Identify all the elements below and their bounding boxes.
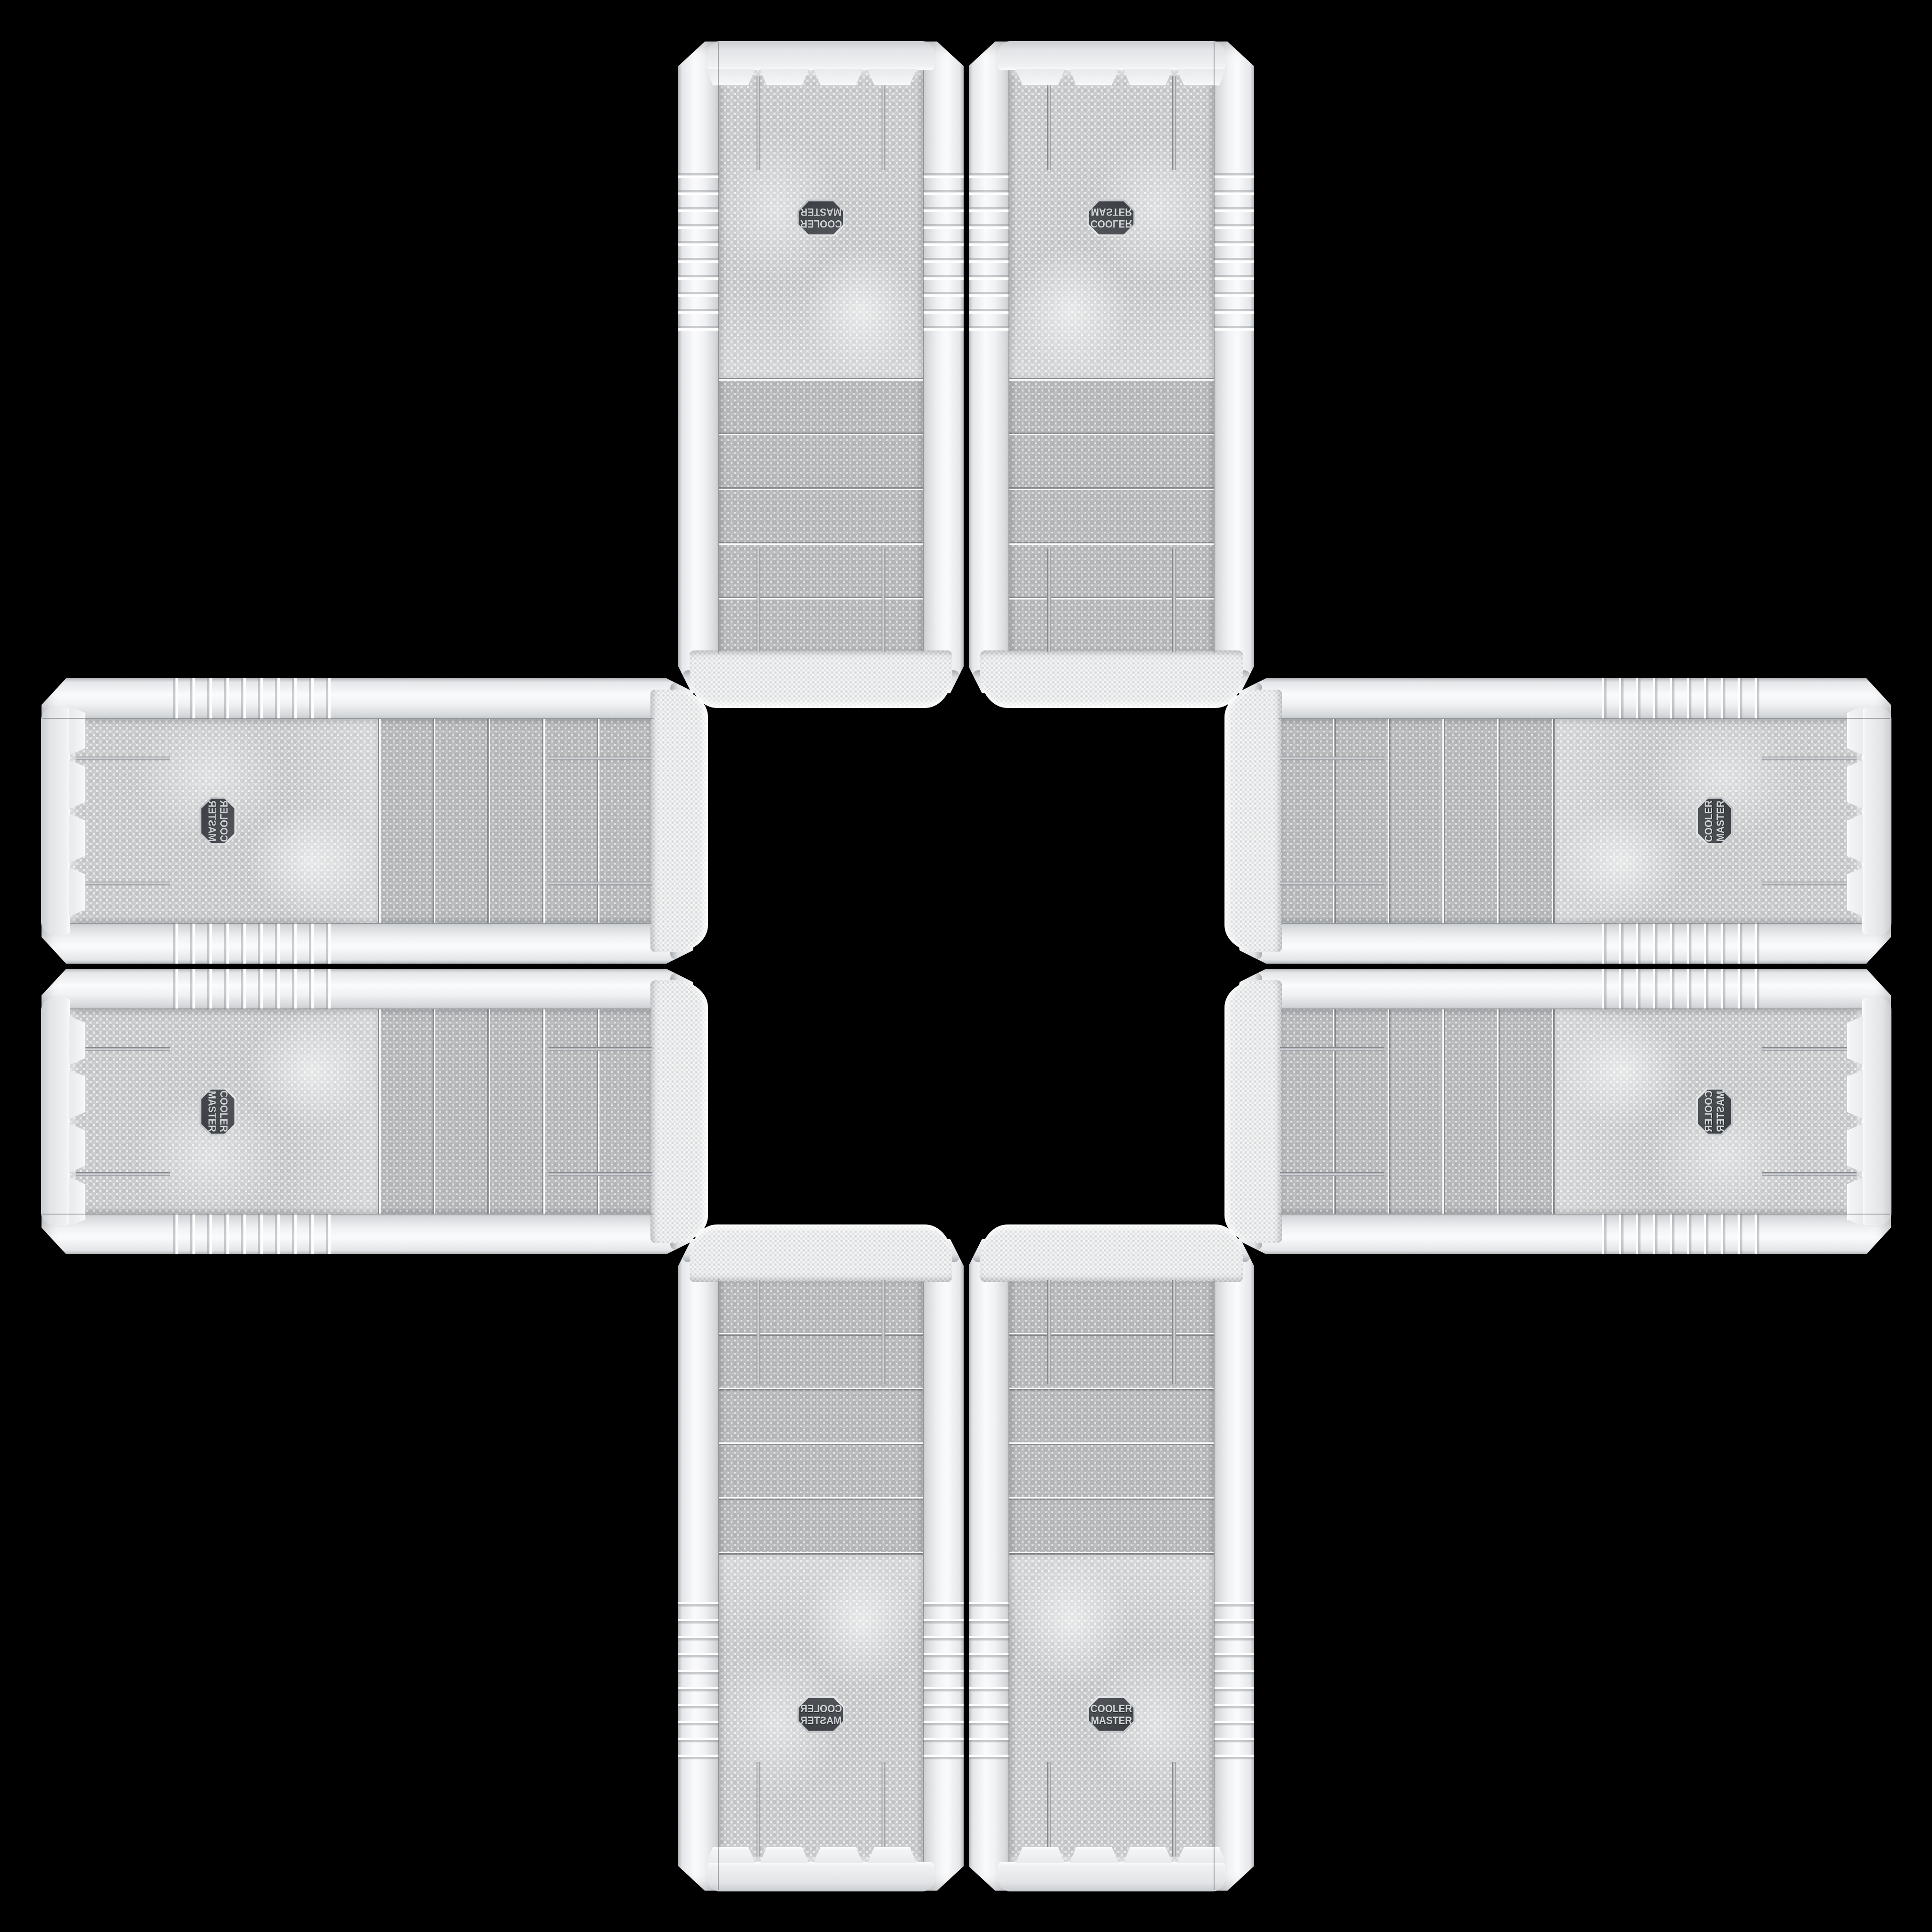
bezel-tab [1016,69,1065,85]
rail-grip-ribs [678,161,720,331]
badge-text-line2: MASTER [800,1715,841,1726]
side-rail-left [969,1236,1010,1891]
bezel-tab [1070,69,1119,85]
chrome-trim [1172,1280,1176,1384]
bezel-tab [867,69,916,85]
rail-grip-ribs [1602,678,1772,720]
chrome-trim [1172,1762,1176,1857]
side-rail-right [678,42,720,697]
front-panel: COOLER MASTER [41,719,708,923]
cooler-master-badge: COOLER MASTER [200,797,236,845]
drive-bay-covers [1281,719,1555,923]
bezel-tab [1177,69,1226,85]
chrome-trim [1280,882,1384,885]
drive-bay-covers [1009,378,1214,651]
badge-text-line1: COOLER [800,218,841,230]
pc-case-top-right: COOLER MASTER [969,41,1254,708]
badge-text-line1: COOLER [218,1091,230,1132]
bezel-tab [1847,867,1863,916]
bezel-tab [69,1124,85,1173]
bottom-bezel [41,708,70,934]
front-mesh-panel: COOLER MASTER [1555,1009,1862,1214]
badge-text-line2: MASTER [1091,1715,1132,1726]
side-rail-right [42,678,697,720]
pc-case-top-left: COOLER MASTER [678,41,964,708]
rail-grip-ribs [1602,969,1772,1010]
curved-top-mesh [690,650,952,708]
rail-grip-ribs [922,161,964,331]
side-rail-left [1236,969,1891,1010]
cooler-master-badge: COOLER MASTER [200,1087,236,1135]
side-rail-right [42,1213,697,1254]
rail-grip-ribs [969,161,1010,331]
bezel-tab [1016,1847,1065,1863]
cooler-master-badge: COOLER MASTER [1696,1087,1733,1135]
chrome-trim [549,1172,652,1176]
bezel-tab [706,1847,755,1863]
chrome-trim [76,882,170,885]
cooler-master-badge: COOLER MASTER [1696,797,1733,845]
drive-bay-covers [1009,1281,1214,1555]
badge-text-line2: MASTER [1715,1091,1726,1132]
rail-grip-ribs [678,1602,720,1772]
chrome-trim [1280,757,1384,760]
chrome-trim [757,1280,760,1384]
rail-grip-ribs [1213,161,1254,331]
badge-text-line2: MASTER [206,800,218,841]
badge-text-line1: COOLER [1091,218,1132,230]
chrome-trim [1172,76,1176,170]
side-rail-right [1236,1213,1891,1254]
side-rail-right [678,1236,720,1891]
rail-grip-ribs [161,1213,331,1254]
chrome-trim [549,757,652,760]
curved-top-mesh [650,690,708,952]
bottom-bezel [998,1862,1225,1891]
chrome-trim [1280,1047,1384,1051]
bezel-tab [1070,1847,1119,1863]
front-panel: COOLER MASTER [719,41,923,708]
badge-text-line2: MASTER [1091,206,1132,218]
chrome-trim [1047,549,1051,652]
front-mesh-panel: COOLER MASTER [719,1555,923,1862]
pc-case-left-top: COOLER MASTER [41,678,708,964]
cooler-master-badge: COOLER MASTER [1087,1696,1135,1733]
chrome-trim [1280,1172,1384,1176]
bezel-tab [760,69,809,85]
bezel-tab [1847,1124,1863,1173]
drive-bay-covers [1281,1009,1555,1214]
curved-top-mesh [1224,690,1282,952]
pc-case-bottom-right: COOLER MASTER [969,1224,1254,1892]
side-rail-right [1213,1236,1254,1891]
chrome-trim [76,1172,170,1176]
drive-bay-covers [378,1009,651,1214]
badge-text-line2: MASTER [206,1091,218,1132]
side-rail-left [969,42,1010,697]
badge-face: COOLER MASTER [1698,1089,1731,1133]
chrome-trim [1172,549,1176,652]
front-mesh-panel: COOLER MASTER [70,719,378,923]
badge-text-line2: MASTER [800,206,841,218]
bezel-tab [760,1847,809,1863]
chrome-trim [757,549,760,652]
side-rail-left [1236,922,1891,964]
bezel-tab [1177,1847,1226,1863]
drive-bay-covers [719,1281,923,1555]
side-rail-left [42,969,697,1010]
bottom-bezel [708,41,934,70]
chrome-trim [1762,757,1857,760]
bezel-tab [1847,1070,1863,1119]
side-rail-left [42,922,697,964]
bezel-tab [1124,1847,1173,1863]
front-mesh-panel: COOLER MASTER [719,70,923,378]
bezel-tab [1847,706,1863,755]
front-mesh-panel: COOLER MASTER [1009,1555,1214,1862]
bezel-tab [1124,69,1173,85]
bottom-bezel [998,41,1225,70]
chrome-trim [76,1047,170,1051]
curved-top-mesh [650,980,708,1243]
badge-text-line1: COOLER [218,800,230,841]
front-panel: COOLER MASTER [1224,1009,1892,1214]
front-mesh-panel: COOLER MASTER [1009,70,1214,378]
chrome-trim [882,1762,885,1857]
cooler-master-badge: COOLER MASTER [797,1696,845,1733]
bezel-tab [69,1177,85,1226]
badge-face: COOLER MASTER [201,799,234,843]
chrome-trim [549,882,652,885]
drive-bay-covers [378,719,651,923]
chrome-trim [1047,1762,1051,1857]
bezel-tab [69,1016,85,1065]
bezel-tab [867,1847,916,1863]
drive-bay-covers [719,378,923,651]
rail-grip-ribs [161,678,331,720]
badge-face: COOLER MASTER [799,1698,843,1731]
bottom-bezel [1862,708,1891,934]
rail-grip-ribs [969,1602,1010,1772]
bottom-bezel [41,998,70,1225]
bottom-bezel [708,1862,934,1891]
bezel-tab [69,867,85,916]
rail-grip-ribs [161,922,331,964]
product-collage-scene: COOLER MASTER [0,0,1932,1932]
badge-text-line2: MASTER [1715,800,1726,841]
bezel-tab [814,69,863,85]
chrome-trim [1762,1047,1857,1051]
chrome-trim [1047,76,1051,170]
chrome-trim [757,76,760,170]
rail-grip-ribs [1213,1602,1254,1772]
curved-top-mesh [690,1224,952,1282]
curved-top-mesh [980,650,1243,708]
badge-face: COOLER MASTER [1089,201,1133,234]
front-panel: COOLER MASTER [41,1009,708,1214]
bezel-tab [69,706,85,755]
badge-text-line1: COOLER [1703,800,1715,841]
side-rail-left [922,42,964,697]
curved-top-mesh [980,1224,1243,1282]
front-panel: COOLER MASTER [1009,1224,1214,1892]
badge-text-line1: COOLER [1703,1091,1715,1132]
badge-face: COOLER MASTER [1698,799,1731,843]
chrome-trim [1762,1172,1857,1176]
badge-face: COOLER MASTER [1089,1698,1133,1731]
bezel-tab [1847,1016,1863,1065]
front-panel: COOLER MASTER [1009,41,1214,708]
bezel-tab [1847,814,1863,863]
rail-grip-ribs [1602,1213,1772,1254]
bezel-tab [69,814,85,863]
bezel-tab [69,1070,85,1119]
bezel-tab [814,1847,863,1863]
side-rail-left [922,1236,964,1891]
side-rail-right [1213,42,1254,697]
badge-text-line1: COOLER [1091,1703,1132,1715]
chrome-trim [882,76,885,170]
rail-grip-ribs [922,1602,964,1772]
chrome-trim [757,1762,760,1857]
front-panel: COOLER MASTER [1224,719,1892,923]
chrome-trim [549,1047,652,1051]
rail-grip-ribs [1602,922,1772,964]
side-rail-right [1236,678,1891,720]
badge-text-line1: COOLER [800,1703,841,1715]
bezel-tab [1847,1177,1863,1226]
curved-top-mesh [1224,980,1282,1243]
pc-case-right-bottom: COOLER MASTER [1224,969,1892,1254]
cooler-master-badge: COOLER MASTER [797,200,845,236]
front-panel: COOLER MASTER [719,1224,923,1892]
rail-grip-ribs [161,969,331,1010]
chrome-trim [882,1280,885,1384]
badge-face: COOLER MASTER [799,201,843,234]
chrome-trim [1047,1280,1051,1384]
bezel-tab [706,69,755,85]
chrome-trim [1762,882,1857,885]
chrome-trim [76,757,170,760]
bezel-tab [69,760,85,809]
front-mesh-panel: COOLER MASTER [1555,719,1862,923]
front-mesh-panel: COOLER MASTER [70,1009,378,1214]
chrome-trim [882,549,885,652]
cooler-master-badge: COOLER MASTER [1087,200,1135,236]
bottom-bezel [1862,998,1891,1225]
badge-face: COOLER MASTER [201,1089,234,1133]
pc-case-left-bottom: COOLER MASTER [41,969,708,1254]
pc-case-right-top: COOLER MASTER [1224,678,1892,964]
pc-case-bottom-left: COOLER MASTER [678,1224,964,1892]
bezel-tab [1847,760,1863,809]
